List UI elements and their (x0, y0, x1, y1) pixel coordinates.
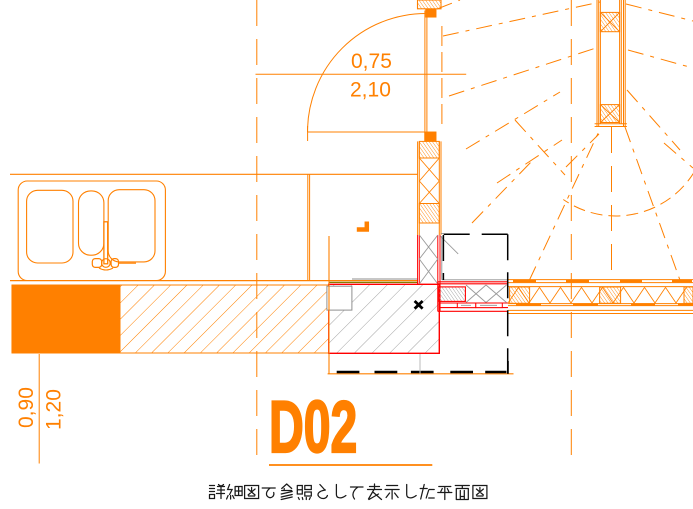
svg-text:0,90: 0,90 (15, 387, 38, 428)
svg-text:0,75: 0,75 (351, 50, 392, 73)
svg-text:1,20: 1,20 (43, 389, 66, 430)
svg-text:D02: D02 (269, 387, 357, 469)
svg-text:2,10: 2,10 (350, 79, 391, 102)
